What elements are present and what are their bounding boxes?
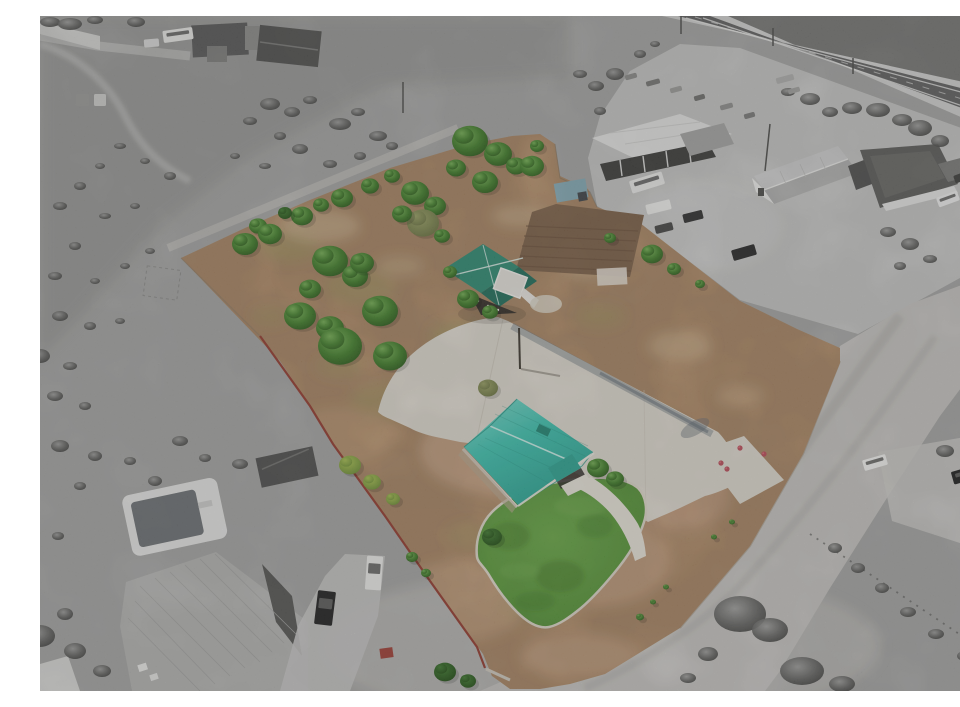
aerial-photo-canvas [40,16,960,691]
aerial-photo [40,16,960,691]
photo-grain [40,16,960,691]
